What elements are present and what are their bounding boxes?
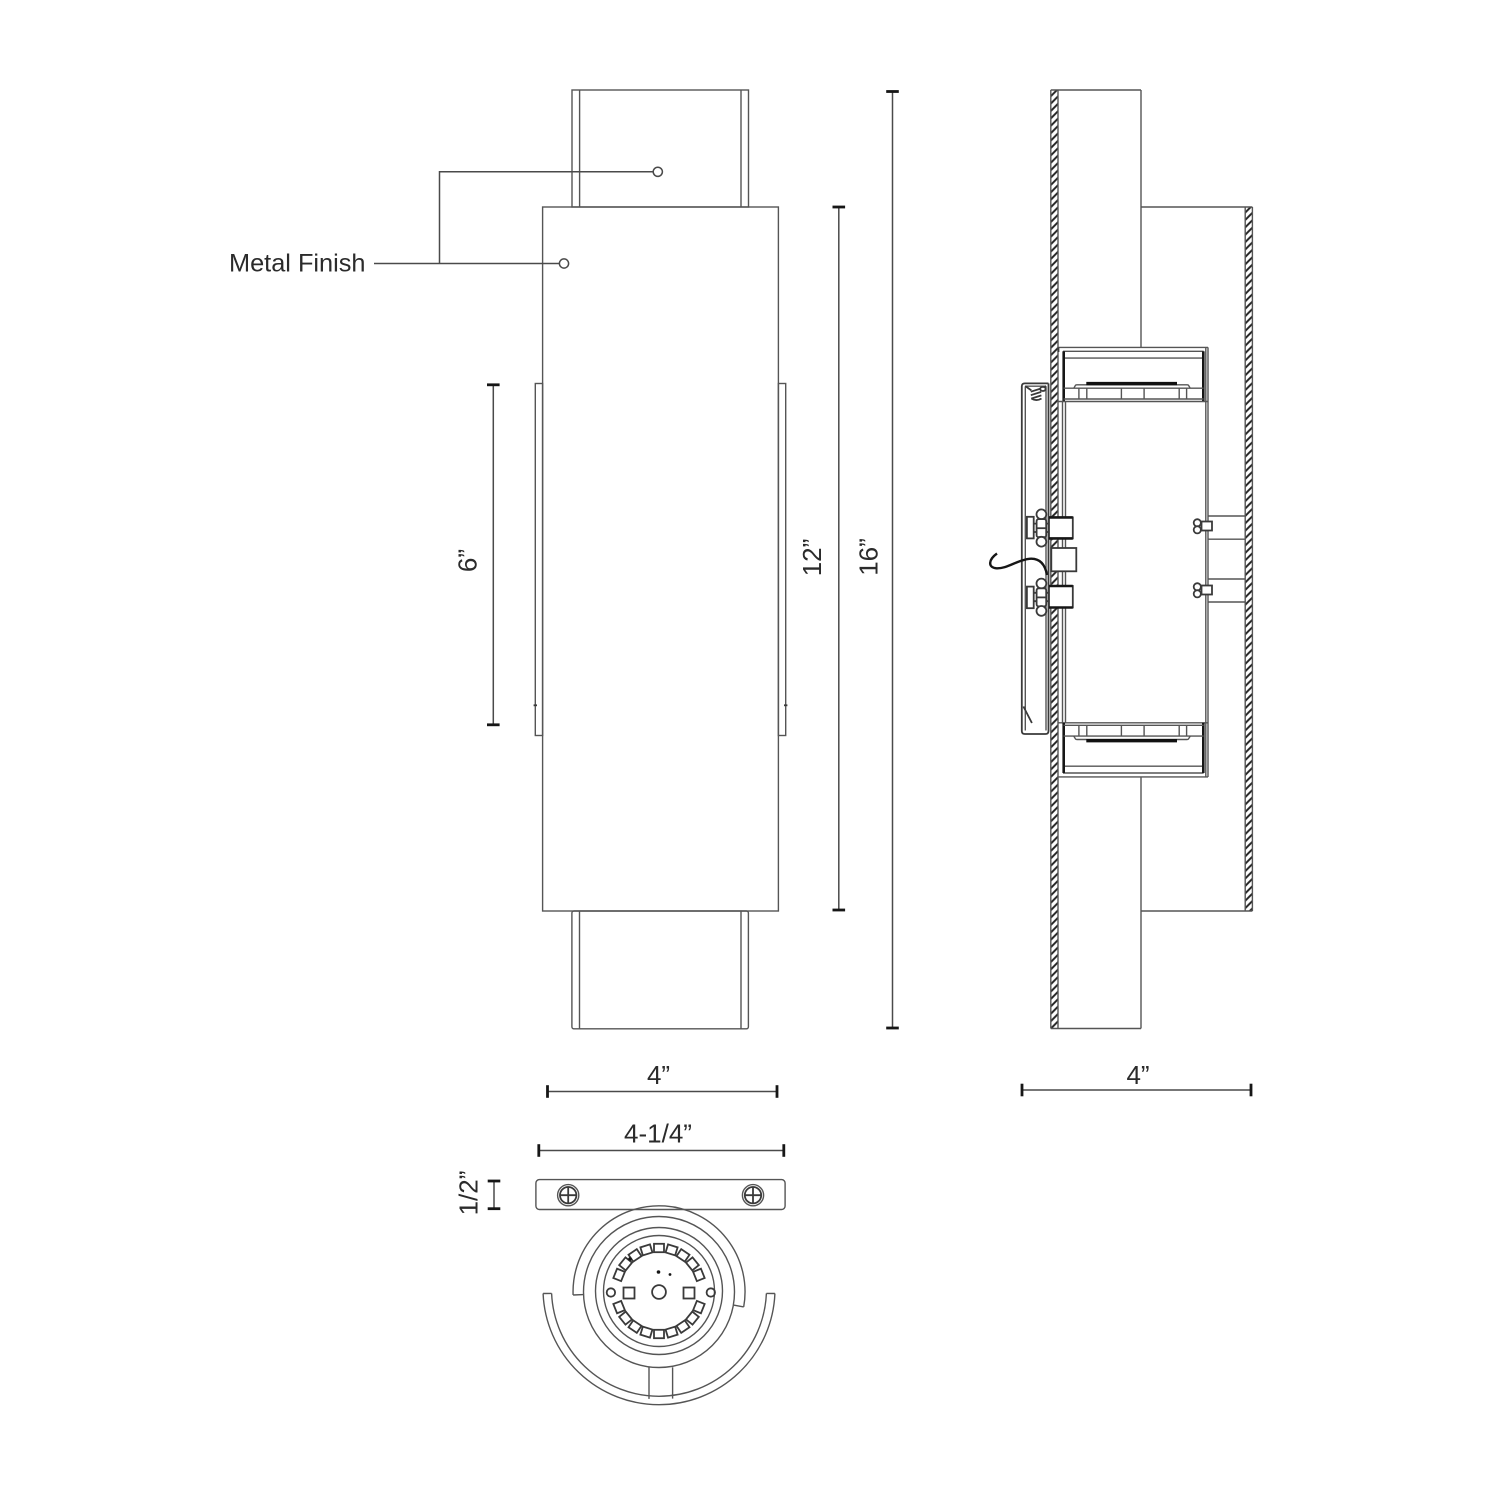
svg-text:4-1/4”: 4-1/4” xyxy=(624,1119,692,1149)
svg-text:1/2”: 1/2” xyxy=(454,1171,484,1216)
svg-text:16”: 16” xyxy=(854,538,884,576)
svg-text:6”: 6” xyxy=(453,549,483,572)
svg-text:Metal Finish: Metal Finish xyxy=(229,250,366,278)
svg-text:12”: 12” xyxy=(797,539,827,577)
svg-text:4”: 4” xyxy=(647,1060,670,1090)
svg-text:4”: 4” xyxy=(1126,1060,1149,1090)
